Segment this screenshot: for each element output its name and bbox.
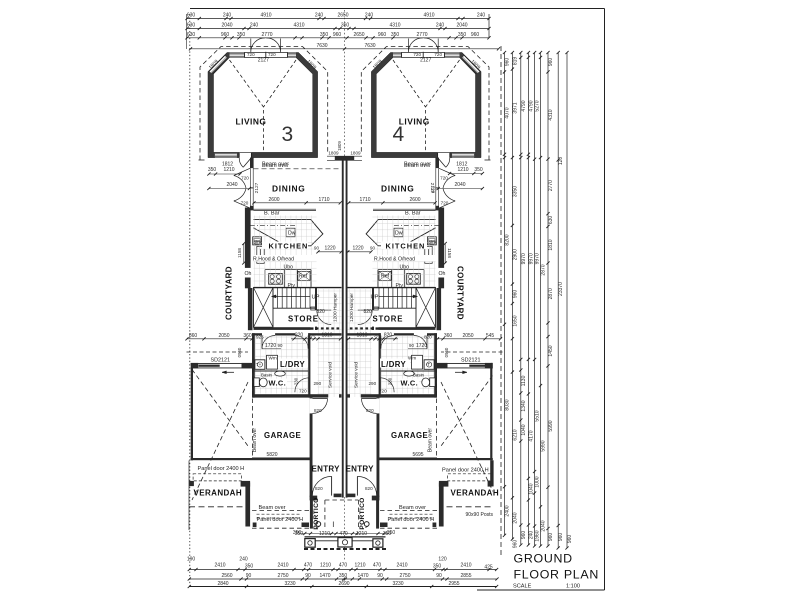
svg-text:7630: 7630 — [364, 43, 375, 49]
svg-text:960: 960 — [521, 531, 527, 540]
svg-text:3: 3 — [282, 123, 294, 146]
svg-text:2410: 2410 — [214, 563, 225, 569]
svg-text:3971: 3971 — [512, 102, 518, 113]
svg-text:2600: 2600 — [268, 197, 279, 203]
svg-text:2410: 2410 — [460, 563, 471, 569]
svg-text:2410: 2410 — [277, 563, 288, 569]
svg-text:350: 350 — [293, 530, 302, 536]
svg-text:-T: -T — [426, 362, 431, 367]
svg-text:1158: 1158 — [447, 248, 452, 258]
svg-text:SCALE: SCALE — [513, 584, 532, 590]
svg-text:7630: 7630 — [316, 43, 327, 49]
svg-text:4070: 4070 — [505, 107, 511, 118]
svg-text:2400: 2400 — [505, 505, 511, 516]
svg-text:1220: 1220 — [352, 246, 363, 252]
svg-text:Oh: Oh — [245, 271, 252, 277]
svg-text:VERANDAH: VERANDAH — [451, 489, 500, 498]
svg-text:5820: 5820 — [266, 452, 277, 458]
svg-text:2770: 2770 — [548, 180, 554, 191]
svg-text:1130: 1130 — [521, 375, 527, 386]
svg-text:425: 425 — [484, 565, 493, 571]
svg-text:720: 720 — [379, 388, 387, 393]
svg-text:3230: 3230 — [284, 581, 295, 587]
svg-text:5695: 5695 — [412, 452, 423, 458]
svg-text:720: 720 — [241, 201, 249, 206]
svg-text:2040: 2040 — [541, 520, 547, 531]
svg-text:2127: 2127 — [420, 58, 431, 64]
svg-text:2040: 2040 — [454, 182, 465, 188]
svg-text:ENTRY: ENTRY — [312, 465, 341, 474]
svg-text:ENTRY: ENTRY — [346, 465, 375, 474]
svg-text:2040: 2040 — [456, 23, 467, 29]
svg-text:Dw: Dw — [395, 231, 403, 237]
svg-text:90: 90 — [278, 343, 283, 348]
svg-text:2690: 2690 — [338, 581, 349, 587]
svg-text:820: 820 — [315, 486, 323, 491]
svg-text:90: 90 — [436, 573, 442, 579]
svg-text:350: 350 — [208, 167, 217, 173]
svg-text:SD2121: SD2121 — [211, 358, 230, 364]
svg-text:350: 350 — [320, 32, 329, 38]
svg-text:1310: 1310 — [321, 333, 332, 339]
svg-text:0960: 0960 — [237, 347, 242, 357]
svg-text:Pty: Pty — [396, 283, 404, 289]
svg-text:8030: 8030 — [505, 399, 511, 410]
svg-text:KITCHEN: KITCHEN — [269, 241, 309, 250]
svg-text:230: 230 — [388, 377, 393, 385]
svg-text:90: 90 — [374, 333, 379, 338]
svg-text:720: 720 — [434, 52, 442, 57]
svg-text:Beam over: Beam over — [252, 428, 258, 453]
svg-text:720: 720 — [241, 176, 249, 181]
svg-text:5990: 5990 — [548, 420, 554, 431]
svg-text:Wm: Wm — [408, 356, 416, 361]
svg-text:240: 240 — [436, 23, 445, 29]
svg-text:2650: 2650 — [337, 13, 348, 19]
svg-text:1000: 1000 — [535, 476, 541, 487]
svg-text:Oh: Oh — [439, 271, 446, 277]
svg-text:630: 630 — [548, 216, 554, 225]
svg-text:UP: UP — [371, 295, 379, 301]
svg-text:4310: 4310 — [293, 23, 304, 29]
svg-text:1210: 1210 — [457, 167, 468, 173]
svg-text:1340: 1340 — [521, 400, 527, 411]
svg-text:Basin: Basin — [413, 372, 425, 377]
svg-text:1710: 1710 — [318, 197, 329, 203]
svg-text:B. Bar: B. Bar — [405, 211, 421, 217]
svg-text:1158: 1158 — [237, 248, 242, 258]
svg-text:960: 960 — [548, 533, 554, 542]
svg-text:W.C.: W.C. — [269, 379, 287, 388]
svg-text:4170: 4170 — [528, 430, 534, 441]
svg-text:240: 240 — [365, 13, 374, 19]
svg-text:4310: 4310 — [389, 23, 400, 29]
svg-text:2855: 2855 — [460, 573, 471, 579]
svg-text:1220: 1220 — [324, 246, 335, 252]
svg-text:2040: 2040 — [512, 512, 518, 523]
svg-text:90: 90 — [314, 246, 319, 251]
svg-text:545: 545 — [486, 333, 495, 339]
svg-text:Panel door 2400 H: Panel door 2400 H — [442, 468, 489, 474]
svg-text:Beam over: Beam over — [262, 162, 289, 168]
svg-text:R.Hood & O/head: R.Hood & O/head — [374, 256, 415, 262]
svg-text:Ubo: Ubo — [284, 264, 294, 270]
svg-text:5270: 5270 — [535, 100, 541, 111]
svg-text:Ubo: Ubo — [400, 264, 410, 270]
svg-text:Beam over: Beam over — [399, 505, 426, 511]
svg-text:2127: 2127 — [258, 58, 269, 64]
svg-text:1:100: 1:100 — [566, 584, 580, 590]
svg-text:960: 960 — [471, 32, 480, 38]
svg-text:470: 470 — [339, 563, 348, 569]
svg-text:DINING: DINING — [272, 184, 306, 194]
svg-text:B. Bar: B. Bar — [264, 211, 280, 217]
svg-text:Ref: Ref — [299, 274, 308, 280]
svg-text:960: 960 — [512, 540, 518, 549]
svg-text:820: 820 — [295, 333, 304, 339]
svg-text:350: 350 — [387, 530, 396, 536]
svg-text:VERANDAH: VERANDAH — [194, 489, 243, 498]
svg-text:2040: 2040 — [221, 23, 232, 29]
svg-text:240: 240 — [477, 13, 486, 19]
svg-text:1450: 1450 — [548, 345, 554, 356]
svg-text:2870: 2870 — [541, 264, 547, 275]
svg-text:2050: 2050 — [218, 333, 229, 339]
svg-text:COURTYARD: COURTYARD — [456, 266, 465, 320]
svg-text:1720: 1720 — [265, 343, 276, 349]
svg-text:2050: 2050 — [462, 333, 473, 339]
svg-text:240: 240 — [528, 531, 534, 540]
svg-text:L/DRY: L/DRY — [280, 360, 306, 369]
svg-text:720: 720 — [441, 201, 449, 206]
svg-text:Ref: Ref — [381, 274, 390, 280]
svg-text:W.C.: W.C. — [401, 379, 419, 388]
svg-text:5990: 5990 — [541, 440, 547, 451]
svg-text:120: 120 — [438, 557, 447, 563]
svg-text:630: 630 — [187, 32, 196, 38]
svg-text:1470: 1470 — [357, 573, 368, 579]
svg-text:Basin: Basin — [261, 372, 273, 377]
svg-text:LIVING: LIVING — [236, 117, 267, 127]
svg-text:Beam over: Beam over — [428, 428, 434, 453]
svg-text:T+: T+ — [256, 362, 262, 367]
svg-text:960: 960 — [512, 290, 518, 299]
svg-text:2127: 2127 — [254, 182, 260, 193]
svg-text:120: 120 — [558, 157, 564, 166]
svg-text:4910: 4910 — [423, 13, 434, 19]
svg-text:1809: 1809 — [350, 150, 361, 155]
svg-text:KITCHEN: KITCHEN — [386, 241, 426, 250]
svg-text:2770: 2770 — [261, 32, 272, 38]
svg-text:4: 4 — [393, 123, 405, 146]
svg-text:Panel door 2400 H: Panel door 2400 H — [388, 517, 435, 523]
svg-text:290: 290 — [314, 381, 322, 386]
svg-text:90: 90 — [370, 246, 375, 251]
svg-text:L/DRY: L/DRY — [381, 360, 407, 369]
svg-text:5510: 5510 — [535, 410, 541, 421]
svg-text:COURTYARD: COURTYARD — [224, 266, 233, 320]
svg-text:820: 820 — [424, 334, 432, 339]
svg-text:9970: 9970 — [535, 253, 541, 264]
svg-text:240: 240 — [250, 23, 259, 29]
svg-text:960: 960 — [221, 32, 230, 38]
svg-text:630: 630 — [187, 23, 196, 29]
svg-text:240: 240 — [315, 13, 324, 19]
svg-text:1210: 1210 — [354, 563, 365, 569]
svg-text:Panel door 2400 H: Panel door 2400 H — [257, 517, 304, 523]
svg-text:720: 720 — [299, 388, 307, 393]
svg-text:1210: 1210 — [319, 531, 330, 537]
svg-text:1710: 1710 — [359, 197, 370, 203]
svg-text:470: 470 — [304, 563, 313, 569]
svg-text:820: 820 — [366, 408, 374, 413]
svg-text:819: 819 — [512, 57, 518, 66]
svg-text:820: 820 — [384, 333, 393, 339]
svg-text:720: 720 — [413, 52, 421, 57]
svg-text:2955: 2955 — [448, 581, 459, 587]
svg-text:8200: 8200 — [505, 234, 511, 245]
svg-text:Service void: Service void — [328, 362, 334, 388]
svg-text:Wm: Wm — [269, 356, 277, 361]
svg-text:360: 360 — [444, 333, 453, 339]
svg-text:3350: 3350 — [512, 186, 518, 197]
svg-text:470: 470 — [339, 531, 348, 537]
svg-text:960: 960 — [505, 58, 511, 67]
svg-text:Dw: Dw — [288, 231, 296, 237]
svg-text:1200 Hamper: 1200 Hamper — [332, 293, 338, 322]
svg-text:STORE: STORE — [288, 315, 319, 324]
svg-text:90: 90 — [409, 343, 414, 348]
svg-text:350: 350 — [245, 564, 254, 570]
svg-text:R.Hood & O/head: R.Hood & O/head — [253, 256, 294, 262]
svg-text:90: 90 — [377, 573, 383, 579]
svg-text:90x90 Posts: 90x90 Posts — [466, 512, 494, 518]
svg-text:1040: 1040 — [528, 483, 534, 494]
svg-text:Service void: Service void — [354, 362, 360, 388]
svg-text:DINING: DINING — [381, 184, 415, 194]
svg-text:90: 90 — [305, 573, 311, 579]
svg-text:Pty: Pty — [288, 283, 296, 289]
svg-text:1810: 1810 — [548, 239, 554, 250]
svg-text:90: 90 — [311, 333, 316, 338]
svg-text:UP: UP — [312, 295, 320, 301]
svg-text:960: 960 — [548, 58, 554, 67]
svg-text:4790: 4790 — [528, 100, 534, 111]
svg-text:820: 820 — [365, 486, 373, 491]
svg-text:GARAGE: GARAGE — [264, 431, 301, 440]
svg-text:2560: 2560 — [221, 573, 232, 579]
svg-text:4790: 4790 — [521, 100, 527, 111]
svg-text:1040: 1040 — [521, 424, 527, 435]
svg-text:2770: 2770 — [416, 32, 427, 38]
svg-text:1809: 1809 — [337, 141, 342, 151]
svg-text:FLOOR PLAN: FLOOR PLAN — [514, 568, 600, 582]
svg-text:820: 820 — [364, 309, 373, 315]
svg-text:1310: 1310 — [356, 333, 367, 339]
svg-text:240: 240 — [223, 13, 232, 19]
svg-text:360: 360 — [341, 23, 350, 29]
svg-text:960: 960 — [558, 533, 564, 542]
svg-text:4310: 4310 — [548, 109, 554, 120]
svg-text:1210: 1210 — [356, 531, 367, 537]
svg-text:SD2121: SD2121 — [461, 358, 480, 364]
svg-text:960: 960 — [333, 32, 342, 38]
svg-text:350: 350 — [391, 32, 400, 38]
svg-text:230: 230 — [294, 377, 299, 385]
svg-text:3230: 3230 — [392, 581, 403, 587]
svg-text:360: 360 — [243, 333, 252, 339]
svg-text:23370: 23370 — [558, 282, 564, 296]
svg-text:925: 925 — [256, 334, 264, 339]
svg-text:9970: 9970 — [528, 253, 534, 264]
svg-text:350: 350 — [433, 564, 442, 570]
svg-text:720: 720 — [247, 52, 255, 57]
svg-text:720: 720 — [268, 52, 276, 57]
svg-text:350: 350 — [237, 32, 246, 38]
svg-text:1210: 1210 — [223, 167, 234, 173]
svg-text:820: 820 — [317, 309, 326, 315]
svg-text:6210: 6210 — [512, 429, 518, 440]
svg-text:9970: 9970 — [521, 253, 527, 264]
svg-text:1200 Hamper: 1200 Hamper — [349, 293, 355, 322]
svg-text:960: 960 — [567, 535, 573, 544]
svg-text:720: 720 — [431, 186, 436, 194]
svg-text:Panel door 2400 H: Panel door 2400 H — [198, 466, 245, 472]
svg-text:350: 350 — [339, 573, 348, 579]
svg-text:2650: 2650 — [353, 32, 364, 38]
svg-text:GARAGE: GARAGE — [391, 431, 428, 440]
svg-text:Sink: Sink — [254, 240, 263, 245]
svg-text:720: 720 — [440, 176, 448, 181]
svg-text:Sink: Sink — [429, 240, 438, 245]
svg-text:860: 860 — [189, 333, 198, 339]
svg-text:1720: 1720 — [416, 343, 427, 349]
svg-text:960: 960 — [378, 32, 387, 38]
svg-text:470: 470 — [373, 563, 382, 569]
svg-text:2750: 2750 — [277, 573, 288, 579]
svg-text:Beam over: Beam over — [259, 505, 286, 511]
svg-text:2870: 2870 — [548, 288, 554, 299]
svg-text:90: 90 — [246, 573, 252, 579]
svg-text:STORE: STORE — [373, 315, 404, 324]
svg-text:PORTICO: PORTICO — [313, 497, 320, 529]
svg-text:190: 190 — [187, 557, 196, 563]
svg-text:630: 630 — [187, 13, 196, 19]
svg-text:0960: 0960 — [444, 347, 449, 357]
svg-text:2600: 2600 — [409, 197, 420, 203]
svg-text:1650: 1650 — [512, 315, 518, 326]
svg-text:2410: 2410 — [396, 563, 407, 569]
svg-text:2040: 2040 — [226, 182, 237, 188]
svg-text:Beam over: Beam over — [404, 162, 431, 168]
svg-text:GROUND: GROUND — [514, 552, 573, 566]
svg-text:240: 240 — [239, 557, 248, 563]
svg-text:2840: 2840 — [217, 581, 228, 587]
svg-text:4910: 4910 — [260, 13, 271, 19]
svg-text:2750: 2750 — [399, 573, 410, 579]
svg-text:1210: 1210 — [320, 563, 331, 569]
svg-text:PORTICO: PORTICO — [359, 497, 366, 529]
svg-text:820: 820 — [314, 408, 322, 413]
svg-text:290: 290 — [369, 381, 377, 386]
svg-text:350: 350 — [458, 32, 467, 38]
svg-text:2900: 2900 — [512, 249, 518, 260]
svg-text:1470: 1470 — [319, 573, 330, 579]
